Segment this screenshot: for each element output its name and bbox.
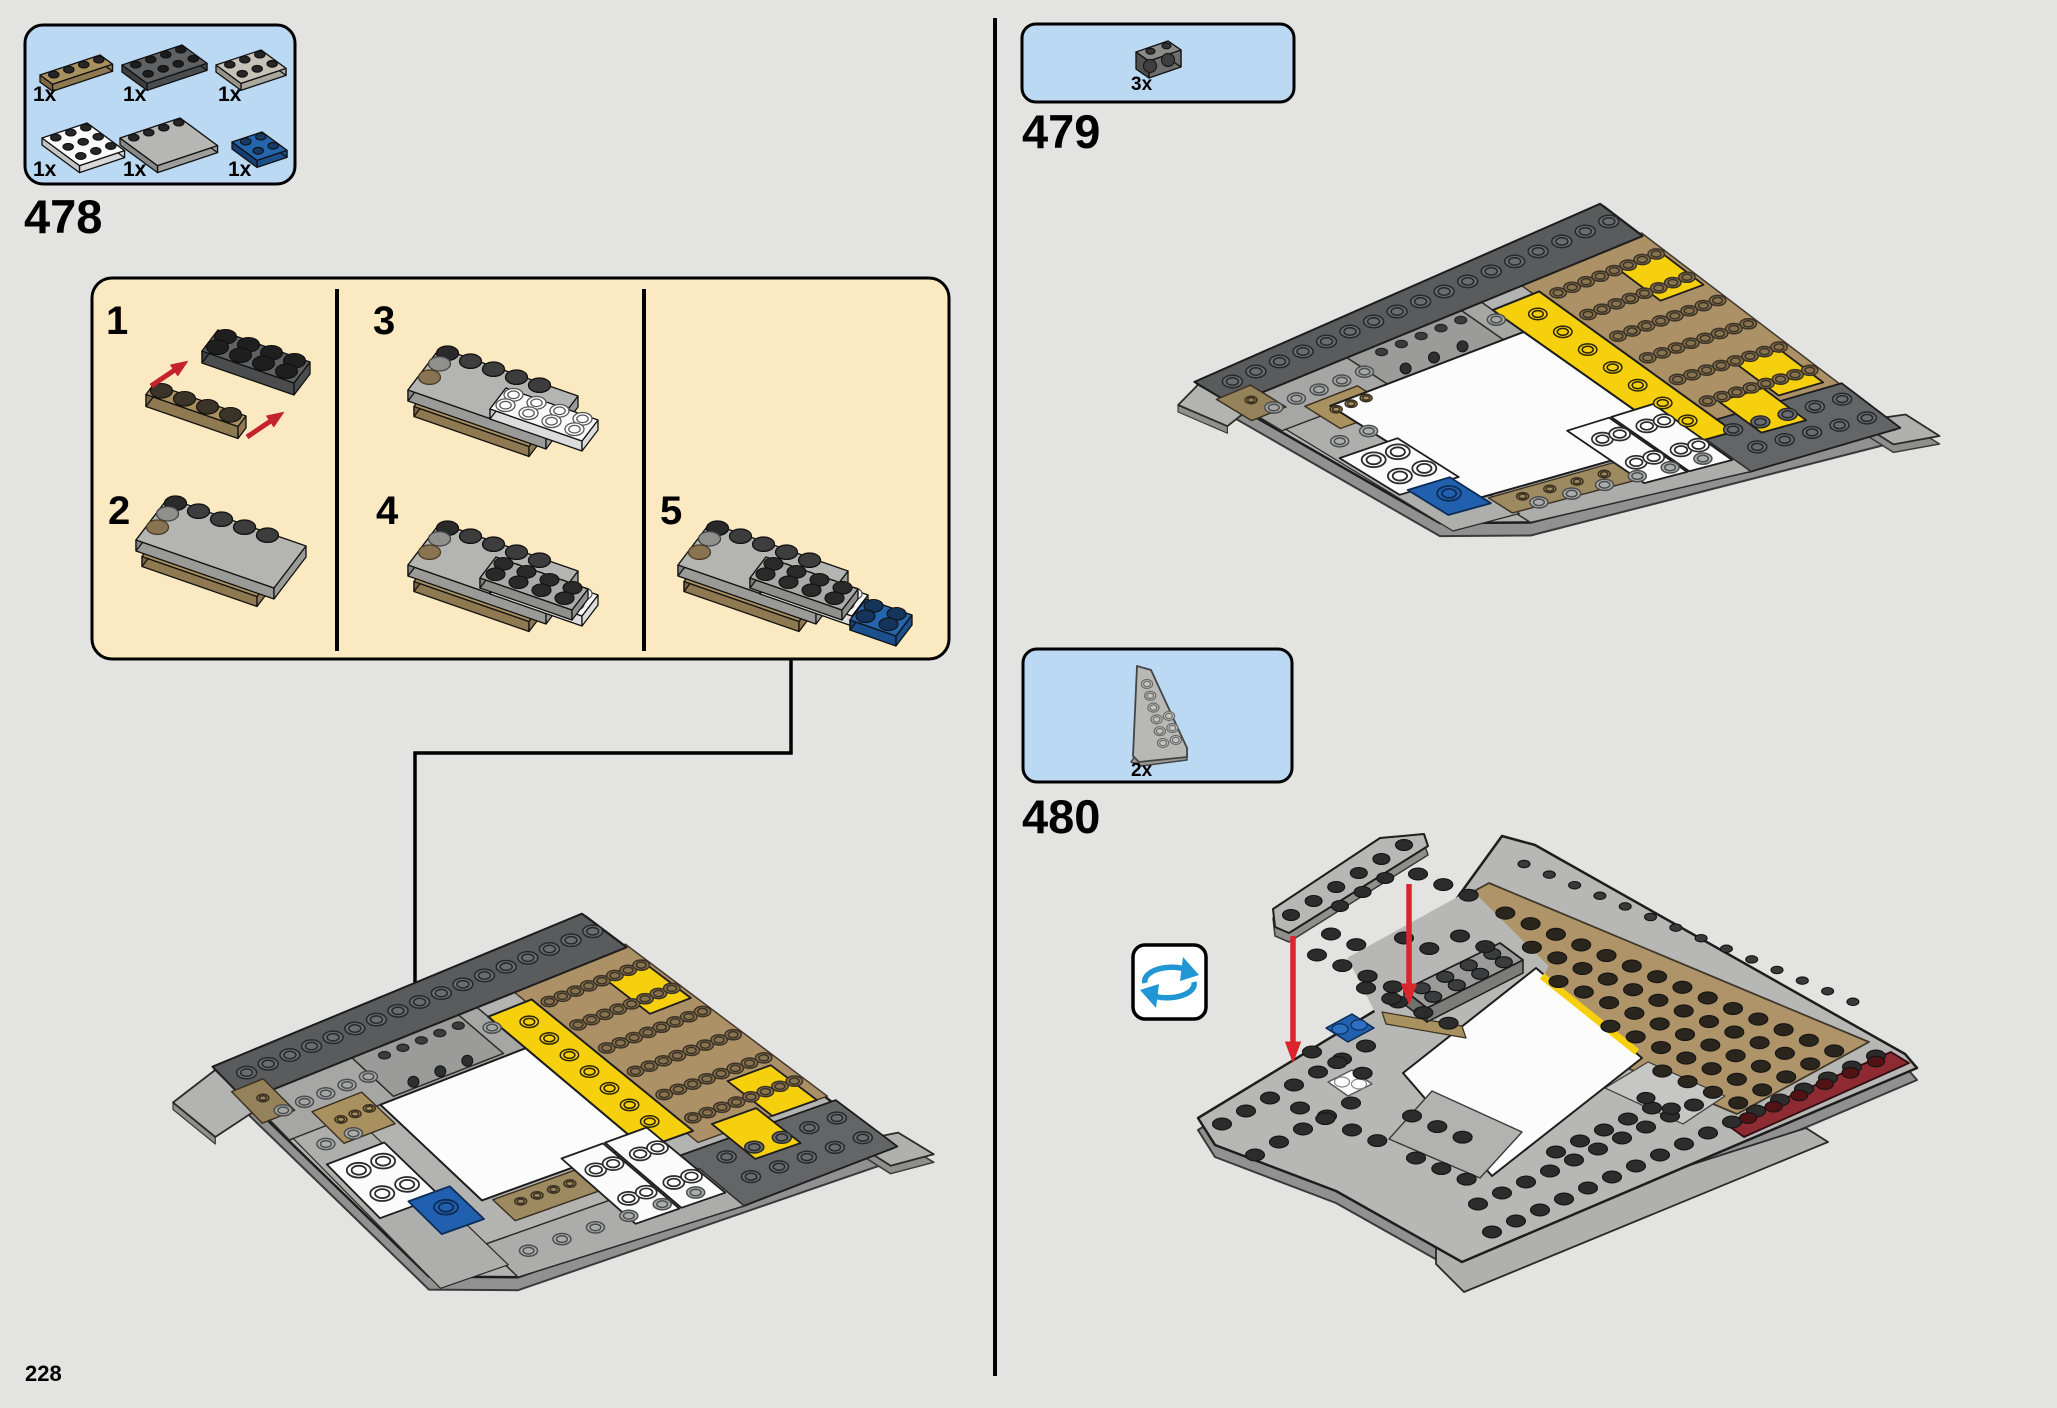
svg-text:1x: 1x bbox=[123, 158, 147, 181]
svg-text:5: 5 bbox=[660, 489, 682, 533]
svg-text:1x: 1x bbox=[228, 158, 252, 181]
svg-text:1x: 1x bbox=[218, 83, 242, 106]
svg-text:480: 480 bbox=[1022, 790, 1100, 843]
svg-text:479: 479 bbox=[1022, 105, 1100, 158]
svg-text:1x: 1x bbox=[33, 158, 57, 181]
svg-text:478: 478 bbox=[24, 190, 102, 243]
svg-text:3x: 3x bbox=[1131, 74, 1153, 95]
svg-text:228: 228 bbox=[25, 1361, 62, 1386]
svg-text:1: 1 bbox=[106, 299, 128, 343]
svg-text:2x: 2x bbox=[1131, 760, 1153, 781]
svg-text:2: 2 bbox=[108, 489, 130, 533]
svg-text:1x: 1x bbox=[33, 83, 57, 106]
svg-text:4: 4 bbox=[376, 489, 399, 533]
svg-text:1x: 1x bbox=[123, 83, 147, 106]
svg-text:3: 3 bbox=[373, 299, 395, 343]
